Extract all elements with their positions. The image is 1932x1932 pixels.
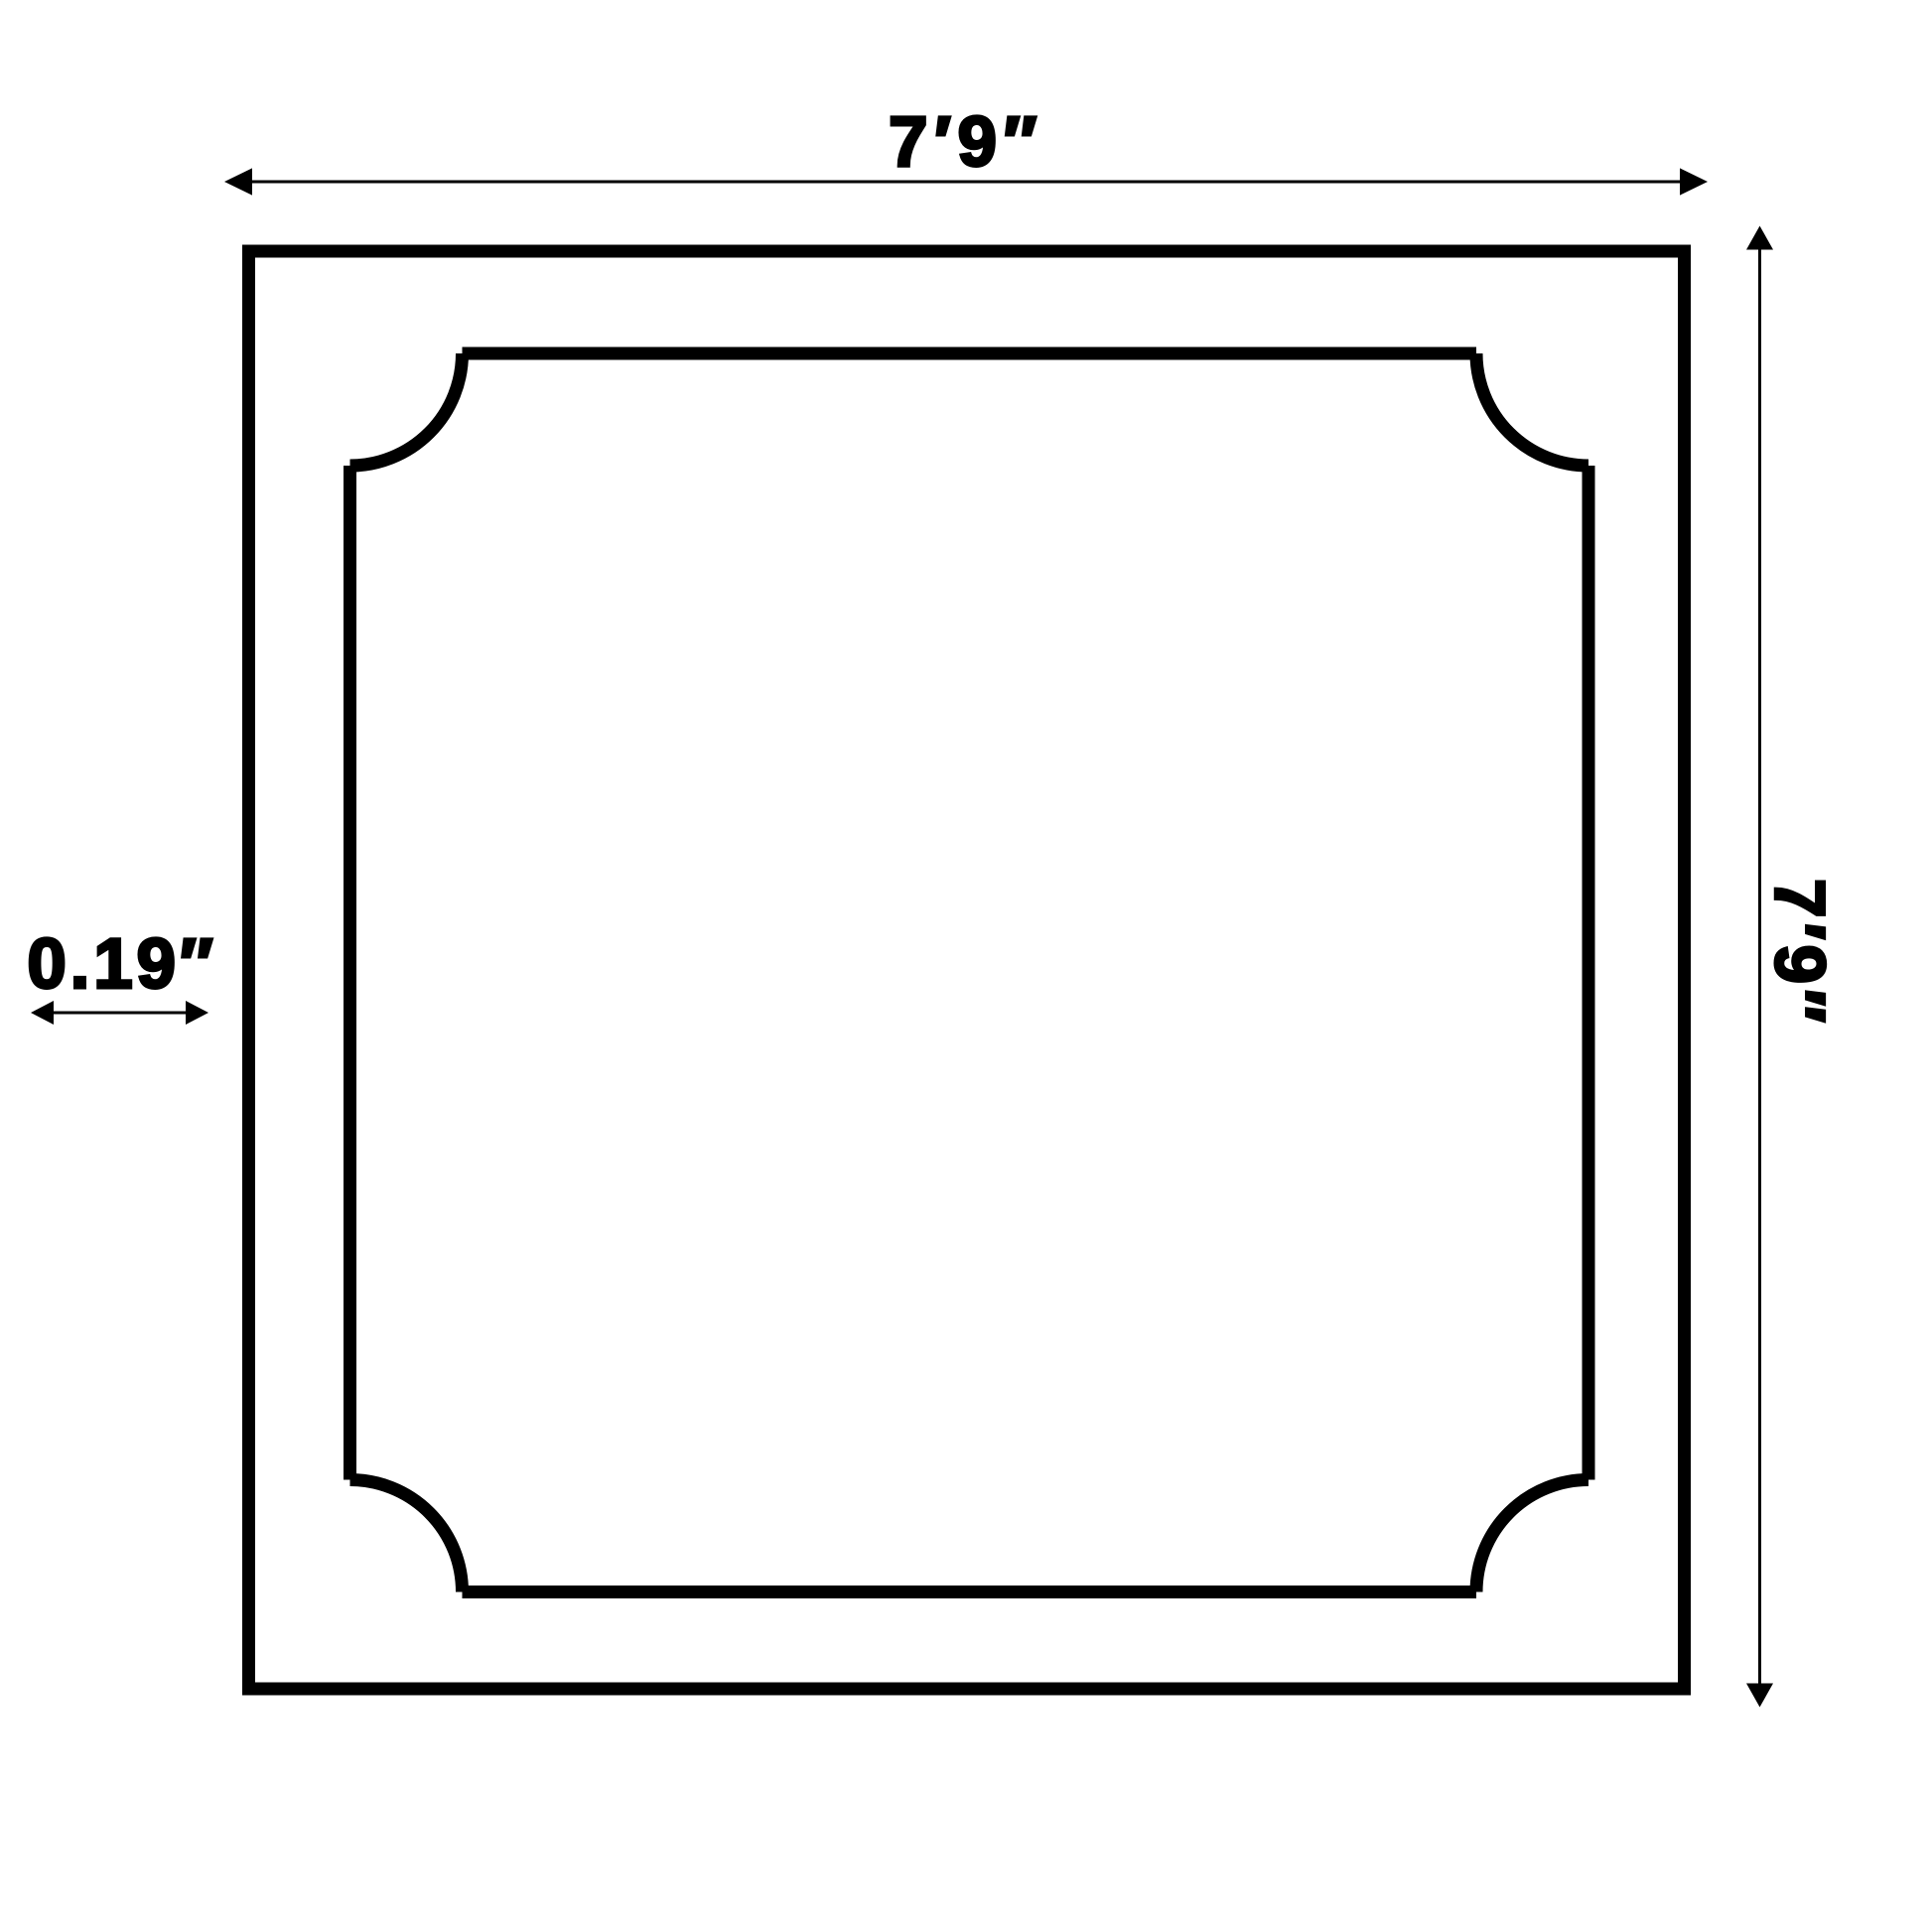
svg-text:7′9″: 7′9″	[889, 103, 1043, 182]
svg-text:7′9″: 7′9″	[1760, 879, 1839, 1028]
svg-text:0.19″: 0.19″	[27, 925, 216, 1004]
